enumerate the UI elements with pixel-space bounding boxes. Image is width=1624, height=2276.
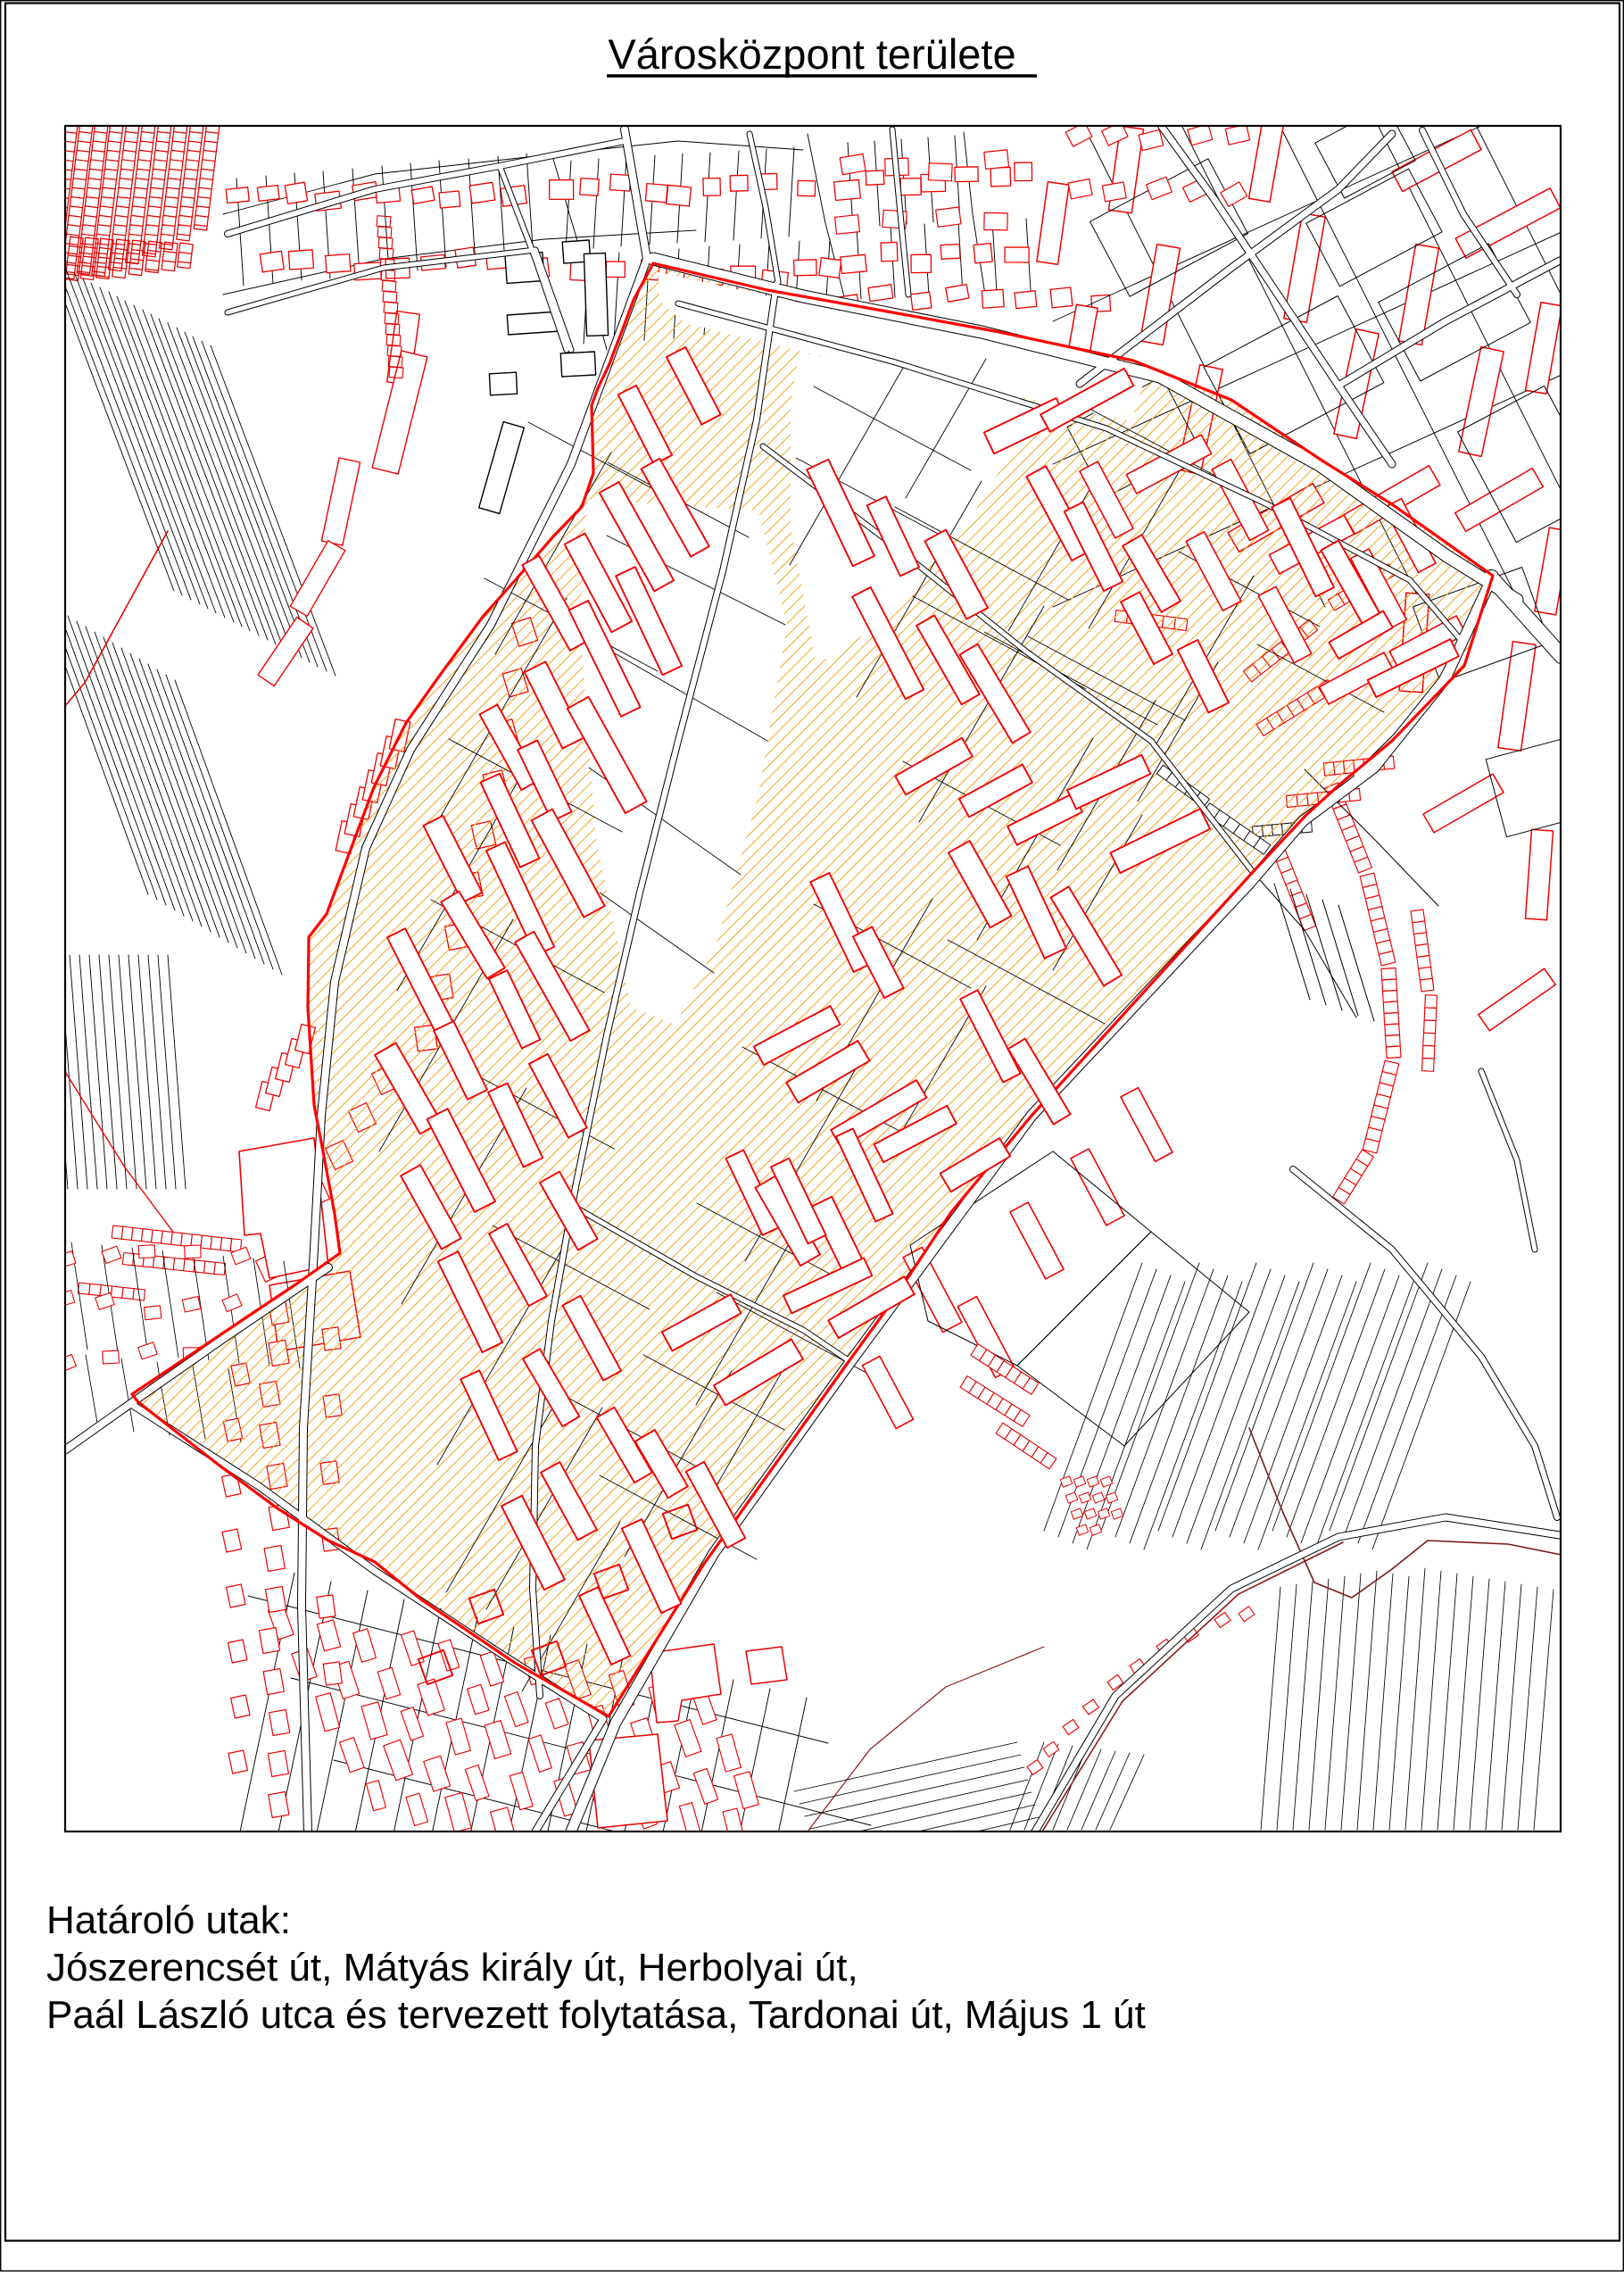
svg-text:Jószerencsét út, Mátyás király: Jószerencsét út, Mátyás király út, Herbo… [46,1946,858,1989]
svg-text:Határoló utak:: Határoló utak: [46,1898,291,1942]
svg-text:Városközpont területe: Városközpont területe [608,30,1015,78]
svg-text:Paál László utca és tervezett: Paál László utca és tervezett folytatása… [46,1993,1146,2037]
